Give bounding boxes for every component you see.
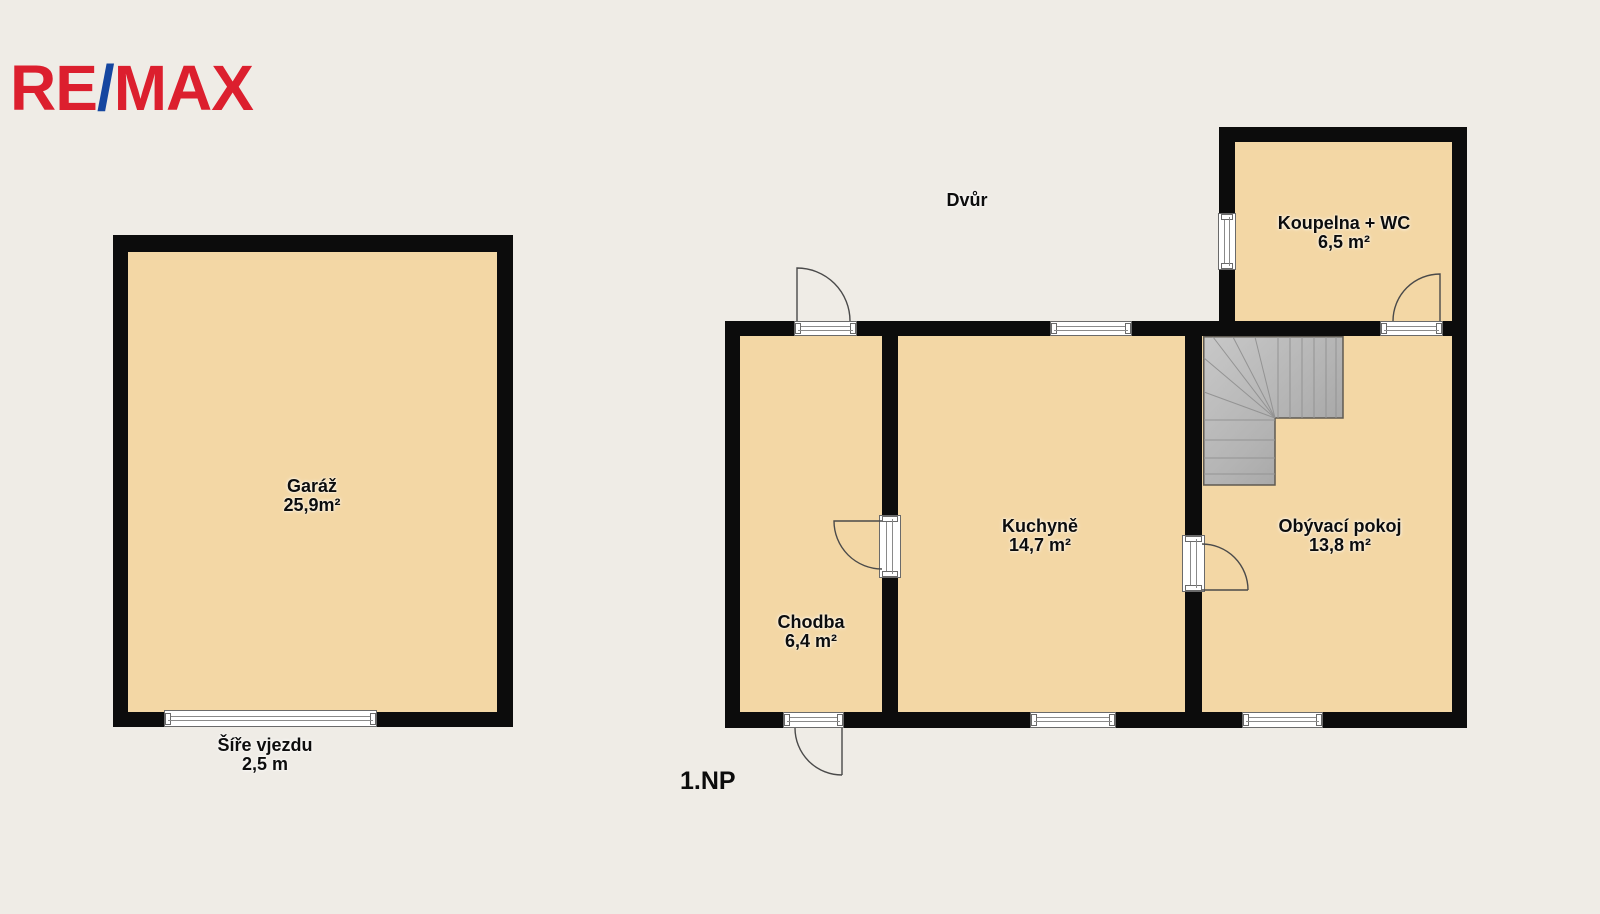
window-cap [165,713,171,725]
door-arc-entrance [795,728,842,775]
room-area: 25,9m² [162,496,462,515]
floor-plan-canvas: RE/MAX Dvůr Garáž 25,9m² Šíře vjezdu 2,5… [0,0,1600,914]
door-arc-courtyard [797,268,850,321]
logo-max-text: MAX [114,52,253,124]
room-name: Garáž [162,477,462,496]
window-cap [1221,263,1234,269]
room-name: Kuchyně [890,517,1190,536]
bathroom-door [1380,321,1443,336]
room-area: 14,7 m² [890,536,1190,555]
front-entrance-door [783,712,844,728]
room-label-hallway: Chodba 6,4 m² [661,613,961,651]
living-room-window [1242,712,1323,728]
kitchen-south-window [1030,712,1116,728]
window-cap [1125,323,1131,333]
room-label-kitchen: Kuchyně 14,7 m² [890,517,1190,555]
entrance-width-text: Šíře vjezdu [115,736,415,755]
room-name: Chodba [661,613,961,632]
courtyard-label: Dvůr [867,191,1067,210]
window-cap [850,323,856,333]
window-cap [795,323,801,333]
window-cap [882,571,898,577]
window-cap [1051,323,1057,333]
window-cap [1109,714,1115,725]
window-cap [370,713,376,725]
wall-kitchen-living-upper [1185,336,1202,535]
window-cap [1316,714,1322,725]
window-cap [837,714,843,725]
logo-slash: / [97,52,114,124]
room-label-living-room: Obývací pokoj 13,8 m² [1190,517,1490,555]
staircase [1203,336,1344,486]
remax-logo: RE/MAX [10,58,253,118]
room-label-garage: Garáž 25,9m² [162,477,462,515]
window-cap [1243,714,1249,725]
entrance-width-value: 2,5 m [115,755,415,774]
room-area: 13,8 m² [1190,536,1490,555]
room-name: Obývací pokoj [1190,517,1490,536]
window-cap [1381,323,1387,333]
hallway-courtyard-door [794,321,857,336]
wall-kitchen-living-lower [1185,592,1202,712]
staircase-drawing [1203,336,1344,486]
window-cap [1185,585,1202,591]
room-area: 6,5 m² [1194,233,1494,252]
entrance-width-label: Šíře vjezdu 2,5 m [115,736,415,774]
garage-entrance-door [164,710,377,727]
room-label-bathroom: Koupelna + WC 6,5 m² [1194,214,1494,252]
window-cap [784,714,790,725]
logo-re-text: RE [10,52,97,124]
wall-hallway-kitchen-upper [882,336,898,515]
room-area: 6,4 m² [661,632,961,651]
kitchen-north-window [1050,321,1132,336]
floor-label: 1.NP [680,768,736,794]
window-cap [1031,714,1037,725]
room-name: Koupelna + WC [1194,214,1494,233]
window-cap [1436,323,1442,333]
